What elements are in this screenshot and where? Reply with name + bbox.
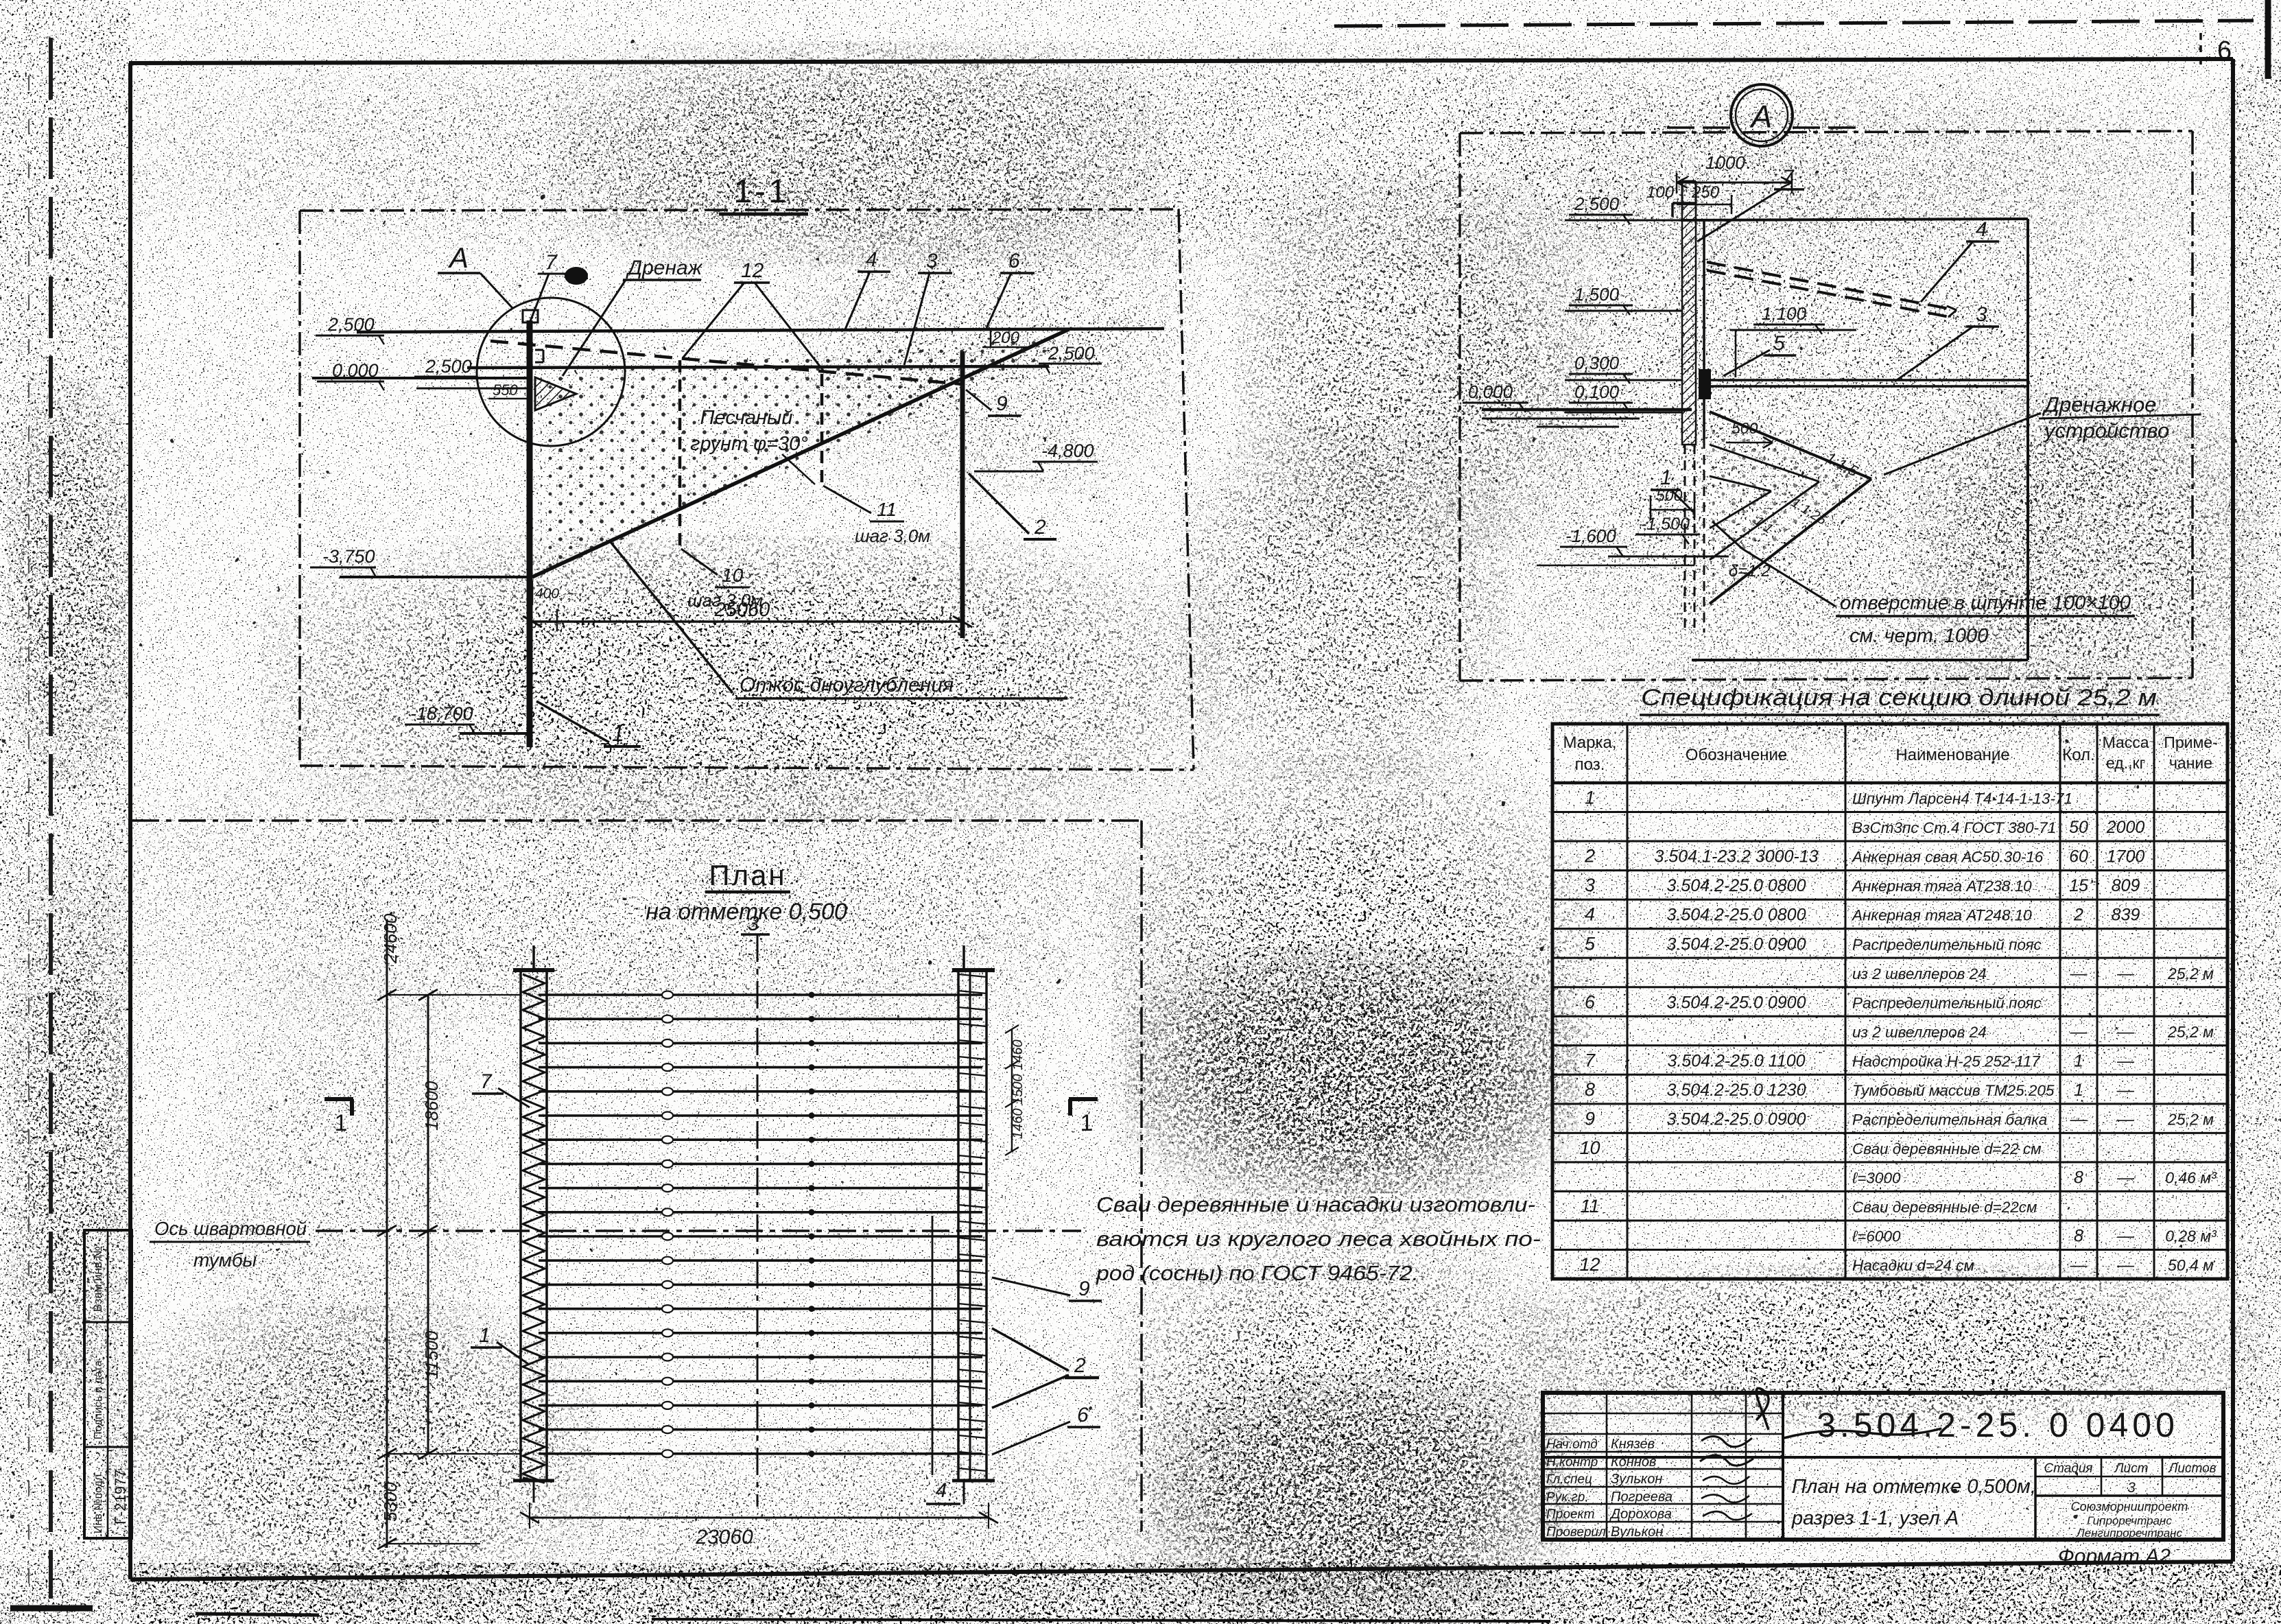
- svg-text:—: —: [2116, 1051, 2135, 1070]
- svg-text:-3,750: -3,750: [322, 546, 375, 567]
- svg-text:-1,500: -1,500: [1641, 515, 1690, 534]
- svg-text:18600: 18600: [421, 1081, 442, 1131]
- svg-text:7: 7: [1782, 166, 1795, 189]
- svg-text:8: 8: [2074, 1227, 2083, 1246]
- svg-text:3.504.1-23.2 3000-13: 3.504.1-23.2 3000-13: [1654, 847, 1818, 867]
- svg-text:1: 1: [2074, 1051, 2083, 1070]
- svg-text:Сваи деревянные d=22 см: Сваи деревянные d=22 см: [1852, 1140, 2042, 1157]
- svg-text:поз.: поз.: [1575, 755, 1605, 774]
- svg-text:550: 550: [493, 381, 518, 399]
- svg-text:А: А: [447, 242, 469, 274]
- svg-text:25,2 м: 25,2 м: [2167, 965, 2214, 982]
- svg-text:2,500: 2,500: [1048, 343, 1095, 364]
- svg-text:10: 10: [722, 565, 744, 586]
- svg-text:15: 15: [2069, 876, 2088, 895]
- svg-text:Надстройка Н-25 252-117: Надстройка Н-25 252-117: [1852, 1052, 2041, 1070]
- svg-text:—: —: [2116, 1022, 2135, 1042]
- svg-text:—: —: [2116, 1109, 2135, 1129]
- svg-text:11: 11: [877, 499, 897, 520]
- svg-text:из 2 швеллеров 24: из 2 швеллеров 24: [1852, 965, 1987, 982]
- svg-text:4: 4: [936, 1479, 947, 1502]
- svg-text:1: 1: [612, 721, 624, 746]
- svg-text:3.504.2-25.0 1100: 3.504.2-25.0 1100: [1667, 1051, 1805, 1070]
- svg-text:3: 3: [926, 250, 938, 272]
- svg-text:4: 4: [866, 248, 877, 271]
- svg-text:Анкерная тяга АТ248.10: Анкерная тяга АТ248.10: [1851, 907, 2032, 924]
- svg-text:Князев: Князев: [1611, 1437, 1655, 1452]
- svg-text:-4,800: -4,800: [1041, 440, 1094, 461]
- svg-text:Вулькон: Вулькон: [1611, 1525, 1663, 1540]
- svg-text:А: А: [1749, 99, 1773, 134]
- svg-text:—: —: [2116, 1256, 2135, 1275]
- svg-text:1: 1: [479, 1324, 491, 1347]
- svg-text:Распределительный пояс: Распределительный пояс: [1852, 994, 2042, 1011]
- svg-text:Г-21977: Г-21977: [112, 1470, 129, 1525]
- svg-text:100: 100: [1646, 183, 1675, 202]
- svg-text:6: 6: [1585, 991, 1596, 1012]
- svg-text:2: 2: [1584, 846, 1595, 867]
- svg-text:Дренажное: Дренажное: [2042, 392, 2156, 416]
- svg-text:Союзморниипроект: Союзморниипроект: [2071, 1500, 2188, 1514]
- svg-text:0,46 м³: 0,46 м³: [2165, 1169, 2217, 1187]
- svg-text:Спецификация на секцию длин: Спецификация на секцию длиной 25,2 м: [1641, 685, 2157, 711]
- svg-text:1700: 1700: [2107, 847, 2145, 867]
- svg-text:—: —: [2070, 1022, 2088, 1042]
- svg-text:3.504.2-25.0 0800: 3.504.2-25.0 0800: [1667, 876, 1806, 895]
- svg-text:25,2 м: 25,2 м: [2167, 1110, 2214, 1128]
- svg-text:12: 12: [1579, 1254, 1600, 1275]
- svg-text:Обозначение: Обозначение: [1686, 746, 1787, 764]
- svg-text:0,28 м³: 0,28 м³: [2165, 1227, 2217, 1245]
- svg-text:—: —: [2116, 1168, 2135, 1188]
- svg-text:2: 2: [1034, 516, 1046, 539]
- svg-text:60: 60: [2069, 847, 2088, 867]
- svg-text:Масса: Масса: [2102, 733, 2149, 751]
- svg-text:Сваи деревянные d=22см: Сваи деревянные d=22см: [1852, 1199, 2037, 1216]
- svg-text:Наименование: Наименование: [1895, 746, 2009, 764]
- svg-text:Взам.инв.№: Взам.инв.№: [91, 1246, 104, 1312]
- svg-text:шаг 3,0м: шаг 3,0м: [855, 526, 930, 546]
- svg-text:1: 1: [2074, 1081, 2083, 1100]
- svg-text:1,500: 1,500: [1574, 284, 1620, 305]
- svg-text:Листов: Листов: [2167, 1461, 2216, 1476]
- svg-text:—: —: [2070, 1109, 2088, 1129]
- svg-text:500: 500: [1732, 419, 1758, 437]
- svg-text:Марка,: Марка,: [1563, 733, 1617, 752]
- svg-text:Распределительная балка: Распределительная балка: [1852, 1111, 2047, 1128]
- svg-text:Рук.гр.: Рук.гр.: [1546, 1490, 1589, 1505]
- svg-text:3.504.2-25. 0 0400: 3.504.2-25. 0 0400: [1817, 1406, 2179, 1444]
- svg-text:Песчаный: Песчаный: [700, 407, 793, 429]
- svg-text:из 2 швеллеров 24: из 2 швеллеров 24: [1852, 1024, 1987, 1041]
- svg-text:25,2 м: 25,2 м: [2167, 1023, 2214, 1041]
- svg-text:24600: 24600: [380, 913, 401, 964]
- svg-text:Гипроречтранс: Гипроречтранс: [2087, 1514, 2172, 1527]
- svg-text:3.504.2-25.0 1230: 3.504.2-25.0 1230: [1667, 1081, 1806, 1100]
- svg-text:Насадки d=24 см: Насадки d=24 см: [1852, 1257, 1974, 1274]
- svg-text:—: —: [2116, 964, 2135, 983]
- svg-text:7: 7: [1585, 1050, 1596, 1070]
- svg-text:2: 2: [2073, 906, 2083, 925]
- svg-text:Проверил: Проверил: [1546, 1525, 1606, 1540]
- svg-text:50,4 м: 50,4 м: [2168, 1256, 2214, 1274]
- svg-text:устройство: устройство: [2043, 419, 2169, 443]
- svg-text:ℓ=3000: ℓ=3000: [1852, 1170, 1901, 1187]
- svg-text:1,100: 1,100: [1762, 303, 1807, 324]
- svg-text:7: 7: [545, 251, 558, 274]
- svg-text:3.504.2-25.0 0900: 3.504.2-25.0 0900: [1667, 993, 1806, 1012]
- svg-text:Анкерная тяга АТ238.10: Анкерная тяга АТ238.10: [1851, 878, 2032, 895]
- svg-text:Приме-: Приме-: [2164, 733, 2217, 751]
- svg-text:Гл.спец: Гл.спец: [1546, 1472, 1592, 1487]
- svg-text:План: План: [709, 859, 786, 891]
- svg-text:Шпунт Ларсен4 Т4-14-1-13-71: Шпунт Ларсен4 Т4-14-1-13-71: [1852, 790, 2072, 808]
- svg-text:Инв.№подл.: Инв.№подл.: [93, 1471, 104, 1533]
- svg-text:2,500: 2,500: [1574, 193, 1620, 214]
- svg-text:род (сосны) по ГОСТ 9465-72.: род (сосны) по ГОСТ 9465-72.: [1096, 1261, 1419, 1285]
- svg-text:-18,700: -18,700: [410, 703, 473, 724]
- svg-text:Нач.отд: Нач.отд: [1546, 1437, 1598, 1452]
- svg-text:11: 11: [1580, 1196, 1599, 1216]
- svg-text:-1,600: -1,600: [1565, 526, 1616, 546]
- svg-text:1: 1: [1585, 788, 1595, 808]
- svg-text:9: 9: [996, 392, 1008, 415]
- svg-text:Дренаж: Дренаж: [626, 257, 703, 279]
- svg-text:12: 12: [741, 259, 764, 282]
- svg-text:Стадия: Стадия: [2044, 1461, 2092, 1476]
- svg-text:3.504.2-25.0 0800: 3.504.2-25.0 0800: [1667, 906, 1806, 925]
- svg-text:4: 4: [1585, 904, 1595, 925]
- svg-text:Проект: Проект: [1546, 1507, 1594, 1522]
- svg-text:3.504.2-25.0 0900: 3.504.2-25.0 0900: [1667, 934, 1806, 954]
- svg-text:2,500: 2,500: [327, 314, 375, 335]
- svg-text:23060: 23060: [695, 1526, 753, 1549]
- svg-text:Сваи деревянные и насадки изг: Сваи деревянные и насадки изготовли-: [1096, 1192, 1535, 1216]
- svg-text:1: 1: [335, 1110, 348, 1136]
- svg-text:400: 400: [535, 586, 559, 602]
- svg-text:5: 5: [1585, 933, 1596, 954]
- svg-text:6: 6: [1077, 1404, 1089, 1426]
- svg-text:отверстие в шпунте 100×100: отверстие в шпунте 100×100: [1840, 592, 2131, 614]
- svg-text:5300: 5300: [380, 1482, 401, 1522]
- svg-text:839: 839: [2112, 906, 2140, 925]
- svg-text:на отметке 0,500: на отметке 0,500: [646, 899, 847, 925]
- svg-text:Формат А2: Формат А2: [2058, 1545, 2171, 1568]
- svg-text:6: 6: [2217, 36, 2232, 65]
- svg-text:3: 3: [1976, 303, 1987, 326]
- svg-text:8: 8: [1585, 1079, 1595, 1100]
- svg-text:δ=1:2: δ=1:2: [1729, 562, 1771, 580]
- svg-text:Лист: Лист: [2114, 1461, 2149, 1476]
- svg-text:0,300: 0,300: [1574, 353, 1620, 373]
- svg-text:6: 6: [1008, 250, 1020, 272]
- svg-text:0,000: 0,000: [1468, 381, 1513, 402]
- svg-text:Распределительный пояс: Распределительный пояс: [1852, 936, 2042, 953]
- svg-text:—: —: [2116, 1227, 2135, 1246]
- svg-text:Н.контр: Н.контр: [1546, 1455, 1598, 1470]
- svg-text:3: 3: [1585, 875, 1595, 895]
- svg-text:1460 1500 1460: 1460 1500 1460: [1011, 1039, 1026, 1139]
- svg-text:2000: 2000: [2106, 818, 2145, 837]
- svg-text:см. черт. 1000: см. черт. 1000: [1849, 625, 1988, 647]
- svg-text:9: 9: [1585, 1108, 1595, 1129]
- svg-text:Погреева: Погреева: [1611, 1490, 1673, 1505]
- svg-text:25060: 25060: [714, 599, 770, 621]
- svg-text:Дорохова: Дорохова: [1609, 1507, 1672, 1522]
- svg-text:Зулькон: Зулькон: [1611, 1472, 1662, 1487]
- svg-text:2: 2: [1074, 1354, 1086, 1377]
- svg-text:Ось швартовной: Ось швартовной: [154, 1218, 307, 1239]
- svg-text:1000: 1000: [1705, 152, 1745, 173]
- svg-text:0,100: 0,100: [1574, 381, 1620, 402]
- svg-text:Коннов: Коннов: [1611, 1455, 1656, 1470]
- svg-text:8: 8: [2074, 1168, 2083, 1188]
- svg-text:грунт φ=30°: грунт φ=30°: [690, 433, 808, 455]
- svg-text:ваются из круглого леса хв: ваются из круглого леса хвойных по-: [1096, 1227, 1541, 1251]
- svg-text:ВзСт3пс Ст.4 ГОСТ 380-71: ВзСт3пс Ст.4 ГОСТ 380-71: [1852, 819, 2056, 836]
- svg-text:1: 1: [1080, 1110, 1094, 1136]
- svg-text:План на отметке 0,500м,: План на отметке 0,500м,: [1792, 1476, 2036, 1498]
- svg-text:Подпись и дата: Подпись и дата: [93, 1361, 104, 1439]
- svg-text:11500: 11500: [421, 1330, 442, 1379]
- svg-text:Тумбовый массив ТМ25.205: Тумбовый массив ТМ25.205: [1852, 1082, 2055, 1099]
- svg-text:—: —: [2116, 1081, 2135, 1100]
- svg-text:ℓ=6000: ℓ=6000: [1852, 1228, 1901, 1245]
- svg-text:Кол.: Кол.: [2062, 746, 2094, 764]
- svg-text:ед.,кг: ед.,кг: [2106, 754, 2145, 772]
- svg-text:2,500: 2,500: [425, 356, 472, 377]
- svg-text:9: 9: [1078, 1278, 1090, 1300]
- svg-text:3: 3: [2127, 1480, 2136, 1496]
- svg-text:разрез 1-1, узел А: разрез 1-1, узел А: [1791, 1507, 1959, 1529]
- svg-text:тумбы: тумбы: [193, 1249, 257, 1271]
- svg-text:0,000: 0,000: [332, 360, 379, 381]
- svg-text:—: —: [2070, 964, 2088, 983]
- svg-text:—: —: [2070, 1256, 2088, 1275]
- svg-text:1: 1: [1660, 467, 1672, 489]
- svg-text:809: 809: [2112, 876, 2140, 895]
- svg-text:1-1: 1-1: [733, 174, 789, 210]
- svg-text:7: 7: [480, 1070, 493, 1093]
- svg-text:3.504.2-25.0 0900: 3.504.2-25.0 0900: [1667, 1109, 1806, 1129]
- svg-text:3: 3: [748, 913, 759, 935]
- svg-text:5: 5: [1773, 332, 1785, 355]
- svg-text:10: 10: [1579, 1138, 1600, 1158]
- svg-text:чание: чание: [2169, 754, 2212, 772]
- svg-text:4: 4: [1976, 218, 1987, 241]
- svg-text:Анкерная свая АС50.30-16: Анкерная свая АС50.30-16: [1851, 849, 2044, 866]
- svg-text:Откос дноуглубления: Откос дноуглубления: [740, 674, 954, 696]
- svg-text:50: 50: [2069, 818, 2088, 837]
- svg-text:Ленгипроречтранс: Ленгипроречтранс: [2076, 1527, 2183, 1540]
